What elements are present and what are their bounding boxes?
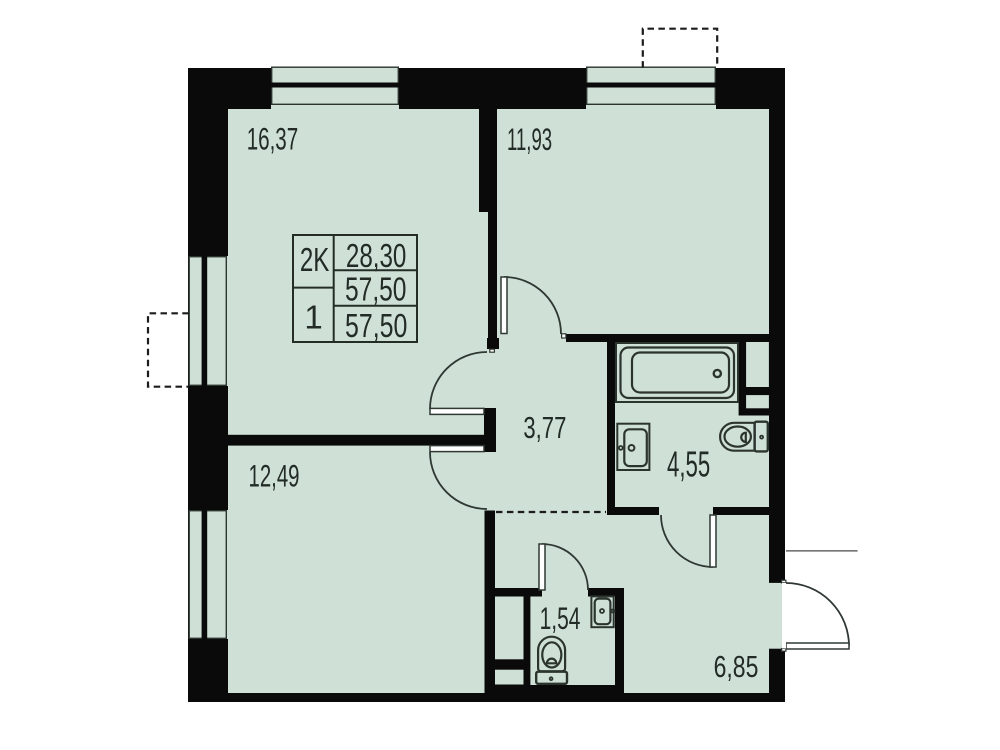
svg-text:28,30: 28,30 bbox=[346, 238, 406, 275]
svg-text:4,55: 4,55 bbox=[667, 445, 710, 485]
svg-text:11,93: 11,93 bbox=[507, 123, 552, 157]
svg-text:1: 1 bbox=[304, 298, 322, 335]
svg-text:2K: 2K bbox=[300, 243, 329, 280]
svg-text:3,77: 3,77 bbox=[523, 411, 566, 445]
svg-text:57,50: 57,50 bbox=[345, 272, 406, 308]
svg-text:57,50: 57,50 bbox=[345, 309, 407, 345]
svg-text:16,37: 16,37 bbox=[247, 121, 298, 157]
svg-text:1,54: 1,54 bbox=[540, 601, 581, 636]
svg-text:6,85: 6,85 bbox=[714, 648, 759, 683]
svg-text:12,49: 12,49 bbox=[249, 458, 300, 494]
